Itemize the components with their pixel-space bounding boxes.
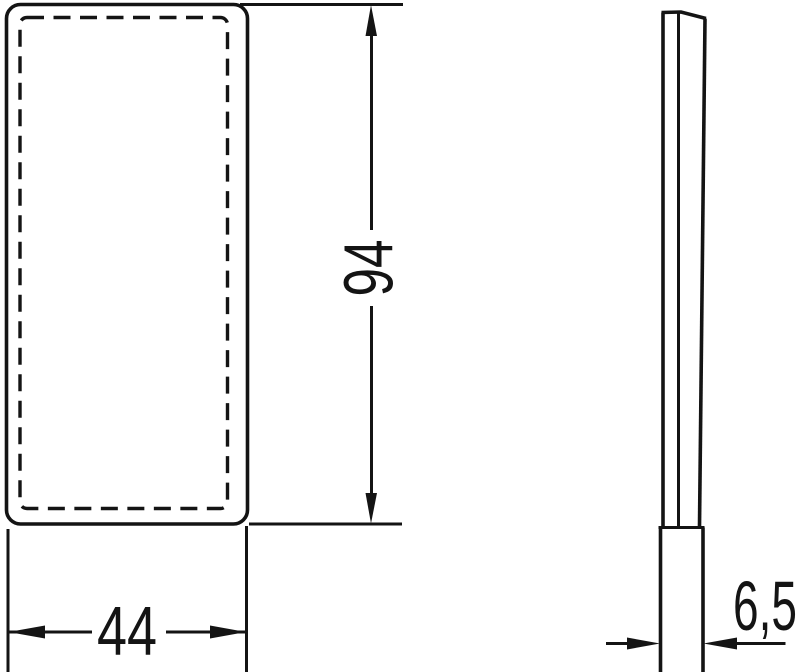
- side-view-top-edge: [662, 12, 707, 19]
- dim-height-arrowhead-up-icon: [366, 5, 378, 36]
- dimension-width: 44: [8, 526, 247, 672]
- reflector-technical-drawing: 94 44 6,5: [0, 0, 800, 672]
- dim-depth-arrowhead-right-pointing-icon: [627, 638, 660, 650]
- front-view-dashed-inline: [20, 18, 228, 509]
- dim-depth-arrowhead-left-pointing-icon: [704, 638, 738, 650]
- side-view: [659, 12, 707, 672]
- dim-height-arrowhead-down-icon: [366, 493, 378, 524]
- front-view: [7, 5, 248, 525]
- dim-width-label: 44: [97, 592, 157, 670]
- dim-width-arrowhead-left-icon: [9, 626, 46, 639]
- dimension-height: 94: [240, 5, 408, 525]
- dim-depth-label: 6,5: [733, 567, 797, 645]
- drawing-canvas: 94 44 6,5: [0, 0, 800, 672]
- dim-width-arrowhead-right-icon: [210, 626, 246, 639]
- front-view-outline: [7, 5, 248, 525]
- side-view-right-edge: [700, 19, 706, 527]
- dim-height-label: 94: [330, 240, 408, 297]
